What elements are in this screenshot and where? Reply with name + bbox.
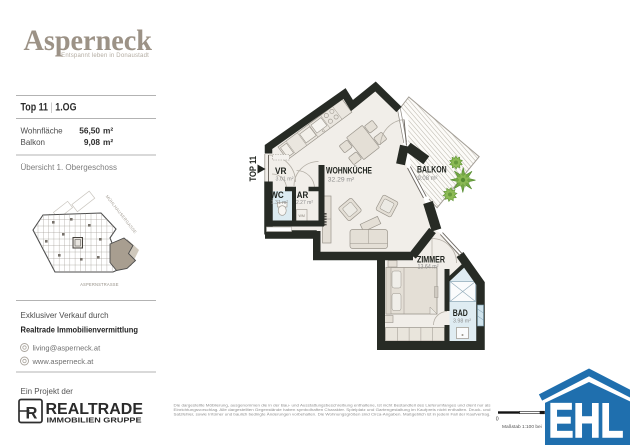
svg-text:9.08 m²: 9.08 m²	[418, 175, 438, 182]
svg-text:3.01 m²: 3.01 m²	[276, 177, 294, 183]
svg-text:BAD: BAD	[453, 308, 468, 318]
svg-text:Einrichtungsvorschlag. Alle da: Einrichtungsvorschlag. Alle dargestellte…	[174, 408, 491, 412]
svg-text:ASPERNSTRASSE: ASPERNSTRASSE	[80, 282, 119, 287]
svg-text:Realtrade Immobilienvermittlun: Realtrade Immobilienvermittlung	[21, 325, 139, 335]
svg-text:Maßstab 1:100 bei: Maßstab 1:100 bei	[502, 424, 542, 430]
svg-text:Ein Projekt der: Ein Projekt der	[21, 387, 74, 396]
svg-text:WM: WM	[299, 214, 305, 218]
svg-text:TOP 11: TOP 11	[248, 156, 258, 182]
svg-text:0: 0	[496, 417, 499, 423]
svg-text:Top 11 | 1.OG: Top 11 | 1.OG	[21, 102, 77, 114]
svg-text:R: R	[26, 405, 38, 423]
svg-text:Wohnfläche: Wohnfläche	[21, 127, 64, 136]
svg-text:IMMOBILIEN GRUPPE: IMMOBILIEN GRUPPE	[47, 418, 142, 425]
svg-text:3.98 m²: 3.98 m²	[453, 318, 471, 324]
svg-text:living@asperneck.at: living@asperneck.at	[33, 344, 102, 353]
svg-text:9,08: 9,08	[84, 137, 101, 147]
svg-text:EHL: EHL	[549, 395, 624, 445]
svg-text:Die dargestellte Möblierung, a: Die dargestellte Möblierung, ausgenommen…	[174, 404, 491, 408]
svg-text:56,50: 56,50	[79, 126, 100, 136]
svg-text:WOHNKÜCHE: WOHNKÜCHE	[326, 166, 372, 177]
svg-text:Satzfehler, sowie Irrtümer und: Satzfehler, sowie Irrtümer und baulich b…	[174, 413, 491, 417]
svg-text:REALTRADE: REALTRADE	[46, 401, 144, 418]
svg-text:2.27 m²: 2.27 m²	[296, 200, 313, 206]
svg-text:32.29 m²: 32.29 m²	[328, 176, 355, 183]
svg-text:www.asperneck.at: www.asperneck.at	[32, 357, 95, 366]
svg-text:13.64 m²: 13.64 m²	[418, 264, 439, 271]
svg-text:AR: AR	[297, 190, 309, 200]
svg-text:BALKON: BALKON	[417, 164, 447, 175]
svg-text:Exklusiver Verkauf durch: Exklusiver Verkauf durch	[21, 311, 109, 320]
svg-text:Übersicht 1. Obergeschoss: Übersicht 1. Obergeschoss	[21, 163, 118, 172]
svg-text:m²: m²	[103, 126, 113, 136]
svg-text:Entspannt leben in Donaustadt: Entspannt leben in Donaustadt	[61, 53, 149, 59]
svg-text:VR: VR	[275, 166, 287, 176]
svg-text:Balkon: Balkon	[21, 138, 45, 147]
svg-text:m²: m²	[103, 137, 113, 147]
svg-text:1.31 m²: 1.31 m²	[271, 200, 288, 206]
svg-text:WC: WC	[270, 190, 284, 200]
